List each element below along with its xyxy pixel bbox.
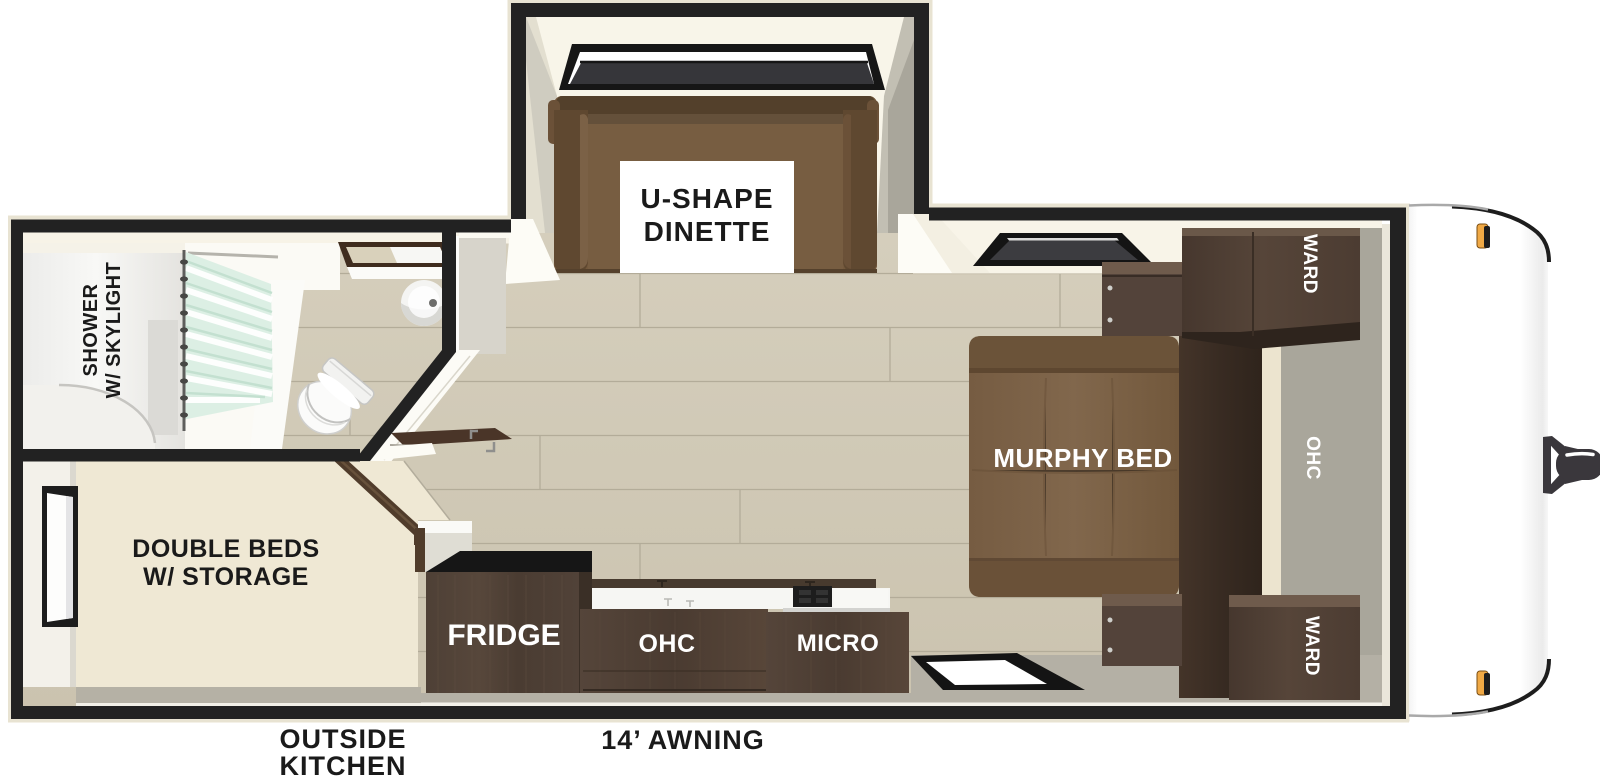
svg-text:KITCHEN: KITCHEN xyxy=(280,751,407,779)
svg-text:WARD: WARD xyxy=(1301,616,1322,676)
svg-text:OHC: OHC xyxy=(638,630,695,658)
svg-text:OHC: OHC xyxy=(1302,436,1323,480)
svg-text:U-SHAPE: U-SHAPE xyxy=(640,183,773,214)
svg-text:DOUBLE BEDS: DOUBLE BEDS xyxy=(132,535,319,563)
svg-text:DINETTE: DINETTE xyxy=(644,216,771,247)
svg-text:MURPHY BED: MURPHY BED xyxy=(993,443,1172,473)
svg-text:WARD: WARD xyxy=(1299,234,1320,294)
svg-text:SHOWER: SHOWER xyxy=(80,283,102,376)
svg-text:OUTSIDE: OUTSIDE xyxy=(279,724,406,754)
svg-text:W/ SKYLIGHT: W/ SKYLIGHT xyxy=(103,262,125,399)
svg-text:FRIDGE: FRIDGE xyxy=(447,619,560,652)
svg-text:W/ STORAGE: W/ STORAGE xyxy=(143,563,309,591)
svg-text:14’ AWNING: 14’ AWNING xyxy=(601,725,765,755)
svg-text:MICRO: MICRO xyxy=(797,630,880,657)
